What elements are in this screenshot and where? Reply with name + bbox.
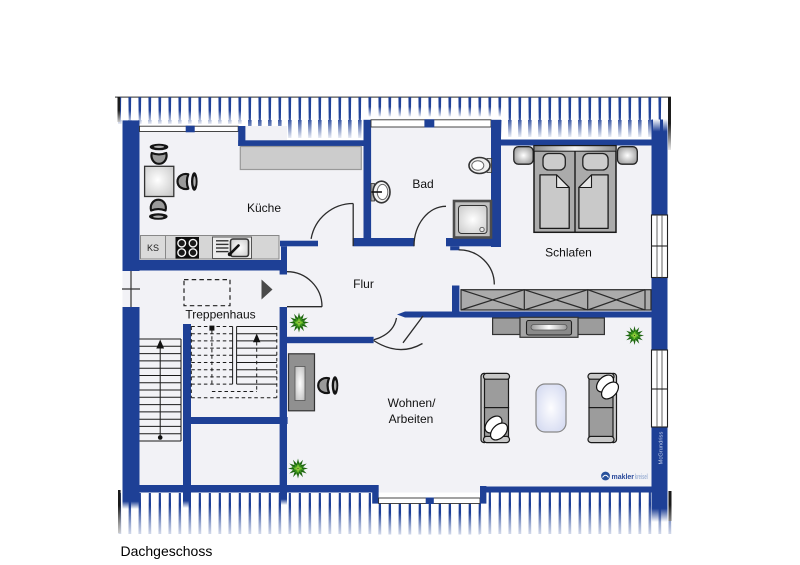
svg-text:Schlafen: Schlafen [545, 246, 592, 260]
svg-text:McGrundriss: McGrundriss [659, 432, 665, 465]
svg-text:Treppenhaus: Treppenhaus [185, 308, 255, 322]
svg-text:Arbeiten: Arbeiten [389, 412, 434, 426]
svg-text:Flur: Flur [353, 277, 374, 291]
svg-text:Dachgeschoss: Dachgeschoss [121, 543, 213, 559]
svg-text:Wohnen/: Wohnen/ [388, 396, 436, 410]
svg-text:kreisel: kreisel [635, 474, 648, 481]
svg-text:makler: makler [612, 474, 635, 481]
svg-text:Küche: Küche [247, 201, 281, 215]
svg-text:Bad: Bad [412, 177, 433, 191]
svg-text:KS: KS [147, 243, 159, 253]
